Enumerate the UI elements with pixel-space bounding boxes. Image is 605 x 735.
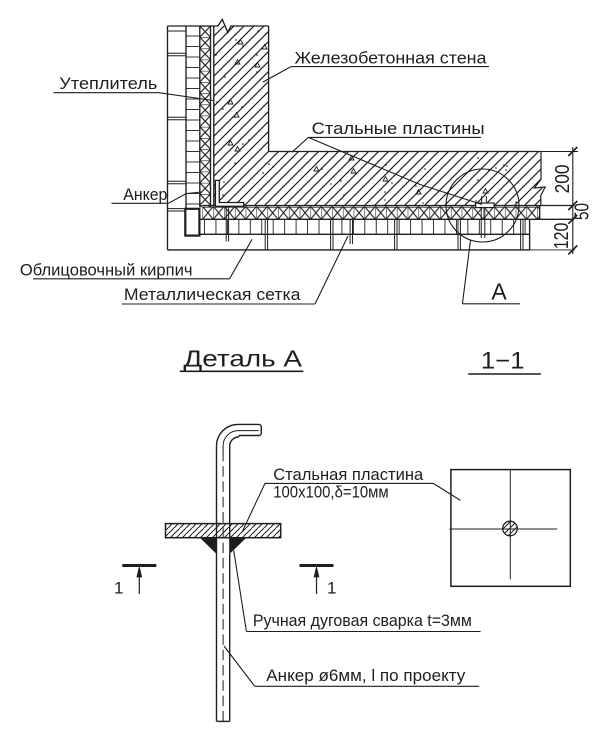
svg-text:100х100,δ=10мм: 100х100,δ=10мм — [273, 483, 389, 502]
svg-text:Стальная пластина: Стальная пластина — [273, 465, 424, 484]
svg-text:Облицовочный кирпич: Облицовочный кирпич — [20, 260, 193, 279]
svg-text:Анкер ø6мм, l по проекту: Анкер ø6мм, l по проекту — [266, 666, 465, 685]
svg-text:А: А — [491, 279, 507, 305]
svg-text:1: 1 — [114, 579, 123, 598]
svg-text:Металлическая сетка: Металлическая сетка — [124, 285, 301, 304]
svg-text:Утеплитель: Утеплитель — [59, 74, 157, 93]
svg-text:1: 1 — [327, 579, 336, 598]
svg-text:Железобетонная стена: Железобетонная стена — [295, 49, 488, 68]
svg-text:Деталь А: Деталь А — [183, 345, 302, 371]
svg-text:Ручная дуговая сварка t=3мм: Ручная дуговая сварка t=3мм — [253, 611, 472, 630]
svg-text:Анкер: Анкер — [123, 185, 167, 204]
svg-text:120: 120 — [551, 223, 573, 250]
svg-text:Стальные пластины: Стальные пластины — [312, 119, 485, 138]
svg-text:50: 50 — [572, 203, 594, 220]
svg-text:200: 200 — [552, 164, 574, 193]
svg-text:1−1: 1−1 — [481, 348, 525, 375]
